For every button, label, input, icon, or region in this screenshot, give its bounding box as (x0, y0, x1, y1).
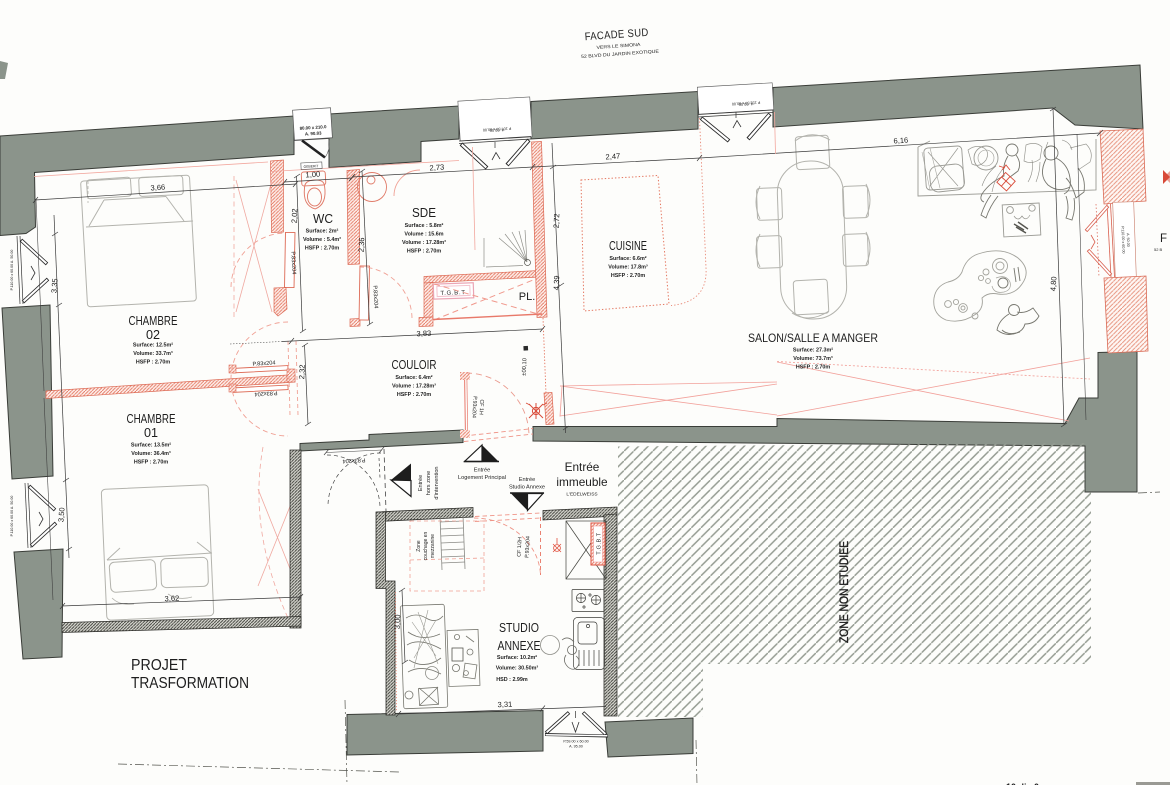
svg-text:2,32: 2,32 (297, 364, 307, 379)
svg-text:Entrée: Entrée (418, 475, 424, 491)
svg-text:2,36: 2,36 (357, 237, 367, 252)
svg-text:mezzanine: mezzanine (430, 534, 436, 558)
svg-text:P.93x204: P.93x204 (524, 536, 531, 558)
svg-text:Surface: 2m²: Surface: 2m² (306, 229, 339, 235)
svg-text:Logement Principal: Logement Principal (458, 475, 506, 481)
svg-text:Surface: 13.5m²: Surface: 13.5m² (131, 443, 171, 449)
svg-text:6,16: 6,16 (893, 136, 908, 146)
svg-text:SALON/SALLE A MANGER: SALON/SALLE A MANGER (748, 331, 878, 345)
svg-text:3,00: 3,00 (393, 614, 403, 629)
svg-text:Volume : 17.28m³: Volume : 17.28m³ (402, 240, 446, 246)
svg-text:COULOIR: COULOIR (392, 358, 437, 372)
svg-text:Surface: 6.6m²: Surface: 6.6m² (609, 256, 646, 262)
svg-text:HSFP : 2.70m: HSFP : 2.70m (305, 246, 340, 252)
svg-text:52 B: 52 B (1154, 247, 1163, 252)
svg-text:2,02: 2,02 (290, 208, 300, 223)
svg-text:T.G.B.T: T.G.B.T (440, 290, 465, 297)
svg-text:Surface : 5.8m²: Surface : 5.8m² (405, 223, 444, 229)
svg-text:Studio Annexe: Studio Annexe (509, 485, 545, 491)
svg-text:4,39: 4,39 (552, 275, 562, 290)
svg-text:HSFP : 2.70m: HSFP : 2.70m (397, 392, 432, 398)
svg-text:Surface: 10.2m²: Surface: 10.2m² (497, 655, 537, 661)
svg-text:±00,10: ±00,10 (522, 358, 529, 376)
svg-text:T.G.B.T: T.G.B.T (597, 532, 603, 555)
svg-text:WC: WC (313, 212, 333, 226)
svg-text:CUISINE: CUISINE (609, 239, 647, 253)
svg-text:TRASFORMATION: TRASFORMATION (131, 675, 249, 692)
svg-text:HSFP : 2.70m: HSFP : 2.70m (407, 249, 442, 255)
svg-text:HSD : 2.99m: HSD : 2.99m (496, 677, 528, 683)
svg-text:PROJET: PROJET (131, 657, 187, 674)
svg-text:4,80: 4,80 (1049, 276, 1059, 291)
svg-text:L'EDELWEISS: L'EDELWEISS (566, 492, 597, 498)
svg-text:ANNEXE: ANNEXE (498, 639, 541, 653)
svg-text:1,00: 1,00 (305, 170, 320, 180)
svg-text:hors zone: hors zone (426, 471, 432, 496)
svg-text:F: F (1160, 233, 1167, 245)
svg-text:A. 50.00: A. 50.00 (490, 128, 504, 133)
svg-text:CHAMBRE: CHAMBRE (129, 314, 178, 328)
svg-text:GEBERIT: GEBERIT (303, 164, 318, 169)
svg-text:Zone: Zone (416, 540, 422, 552)
svg-text:P.83x204: P.83x204 (289, 251, 296, 274)
svg-text:02: 02 (146, 328, 160, 342)
svg-text:2,72: 2,72 (552, 213, 562, 228)
svg-text:P.110.00 x 60.00 A. 50.00: P.110.00 x 60.00 A. 50.00 (10, 496, 14, 537)
svg-text:3,35: 3,35 (49, 278, 59, 294)
svg-text:Surface: 12.5m²: Surface: 12.5m² (133, 343, 173, 349)
svg-text:ZONE NON ETUDIEE: ZONE NON ETUDIEE (839, 541, 851, 643)
svg-text:3,83: 3,83 (416, 329, 431, 339)
svg-text:HSFP : 2.70m: HSFP : 2.70m (796, 365, 831, 371)
svg-text:P.83x204: P.83x204 (371, 285, 378, 308)
svg-text:P.83x204: P.83x204 (342, 456, 365, 463)
svg-text:3,31: 3,31 (497, 700, 512, 710)
svg-text:HSFP : 2.70m: HSFP : 2.70m (611, 273, 646, 279)
svg-text:STUDIO: STUDIO (499, 621, 539, 635)
svg-text:Entrée: Entrée (565, 460, 600, 474)
svg-text:2,47: 2,47 (605, 152, 620, 162)
svg-text:Volume: 17.8m³: Volume: 17.8m³ (608, 265, 648, 271)
svg-text:3,50: 3,50 (56, 507, 66, 523)
svg-text:Volume : 17.28m³: Volume : 17.28m³ (392, 384, 436, 390)
svg-text:d'intervention: d'intervention (434, 466, 440, 499)
svg-text:2,73: 2,73 (429, 163, 444, 173)
svg-text:Volume: 30.50m³: Volume: 30.50m³ (496, 666, 539, 672)
svg-text:Volume: 33.7m³: Volume: 33.7m³ (133, 351, 173, 357)
svg-text:A. 50.00: A. 50.00 (1126, 233, 1130, 247)
svg-text:A. 95.00: A. 95.00 (569, 745, 583, 749)
svg-text:Entrée: Entrée (519, 477, 535, 483)
svg-text:couchage en: couchage en (423, 531, 429, 560)
svg-text:CHAMBRE: CHAMBRE (127, 412, 176, 426)
svg-text:PL.: PL. (519, 291, 536, 303)
svg-text:P.59.00 x 60.00: P.59.00 x 60.00 (563, 740, 588, 744)
svg-text:Volume : 5.4m³: Volume : 5.4m³ (303, 237, 341, 243)
svg-text:CF 1H: CF 1H (478, 399, 485, 415)
svg-text:CF 1/2H: CF 1/2H (516, 537, 523, 557)
svg-text:P.110.00 x 60.00 A. 50.00: P.110.00 x 60.00 A. 50.00 (10, 250, 14, 291)
svg-text:immeuble: immeuble (556, 475, 608, 489)
svg-text:3,62: 3,62 (164, 594, 179, 604)
svg-text:Volume: 36.4m³: Volume: 36.4m³ (131, 451, 171, 457)
svg-text:3,66: 3,66 (150, 183, 165, 193)
svg-text:HSFP : 2.70m: HSFP : 2.70m (134, 460, 169, 466)
svg-text:01: 01 (144, 426, 158, 440)
svg-text:Surface: 27.3m²: Surface: 27.3m² (793, 348, 833, 354)
svg-text:A. 50.00: A. 50.00 (739, 102, 753, 107)
svg-text:Entrée: Entrée (474, 468, 490, 474)
svg-text:Volume: 73.7m³: Volume: 73.7m³ (793, 356, 833, 362)
svg-text:Volume : 15.6m: Volume : 15.6m (404, 232, 443, 238)
svg-text:P.93x204: P.93x204 (470, 396, 477, 418)
svg-text:HSFP : 2.70m: HSFP : 2.70m (136, 360, 171, 366)
svg-text:SDE: SDE (412, 206, 436, 220)
svg-text:Surface: 6.4m²: Surface: 6.4m² (395, 375, 432, 381)
